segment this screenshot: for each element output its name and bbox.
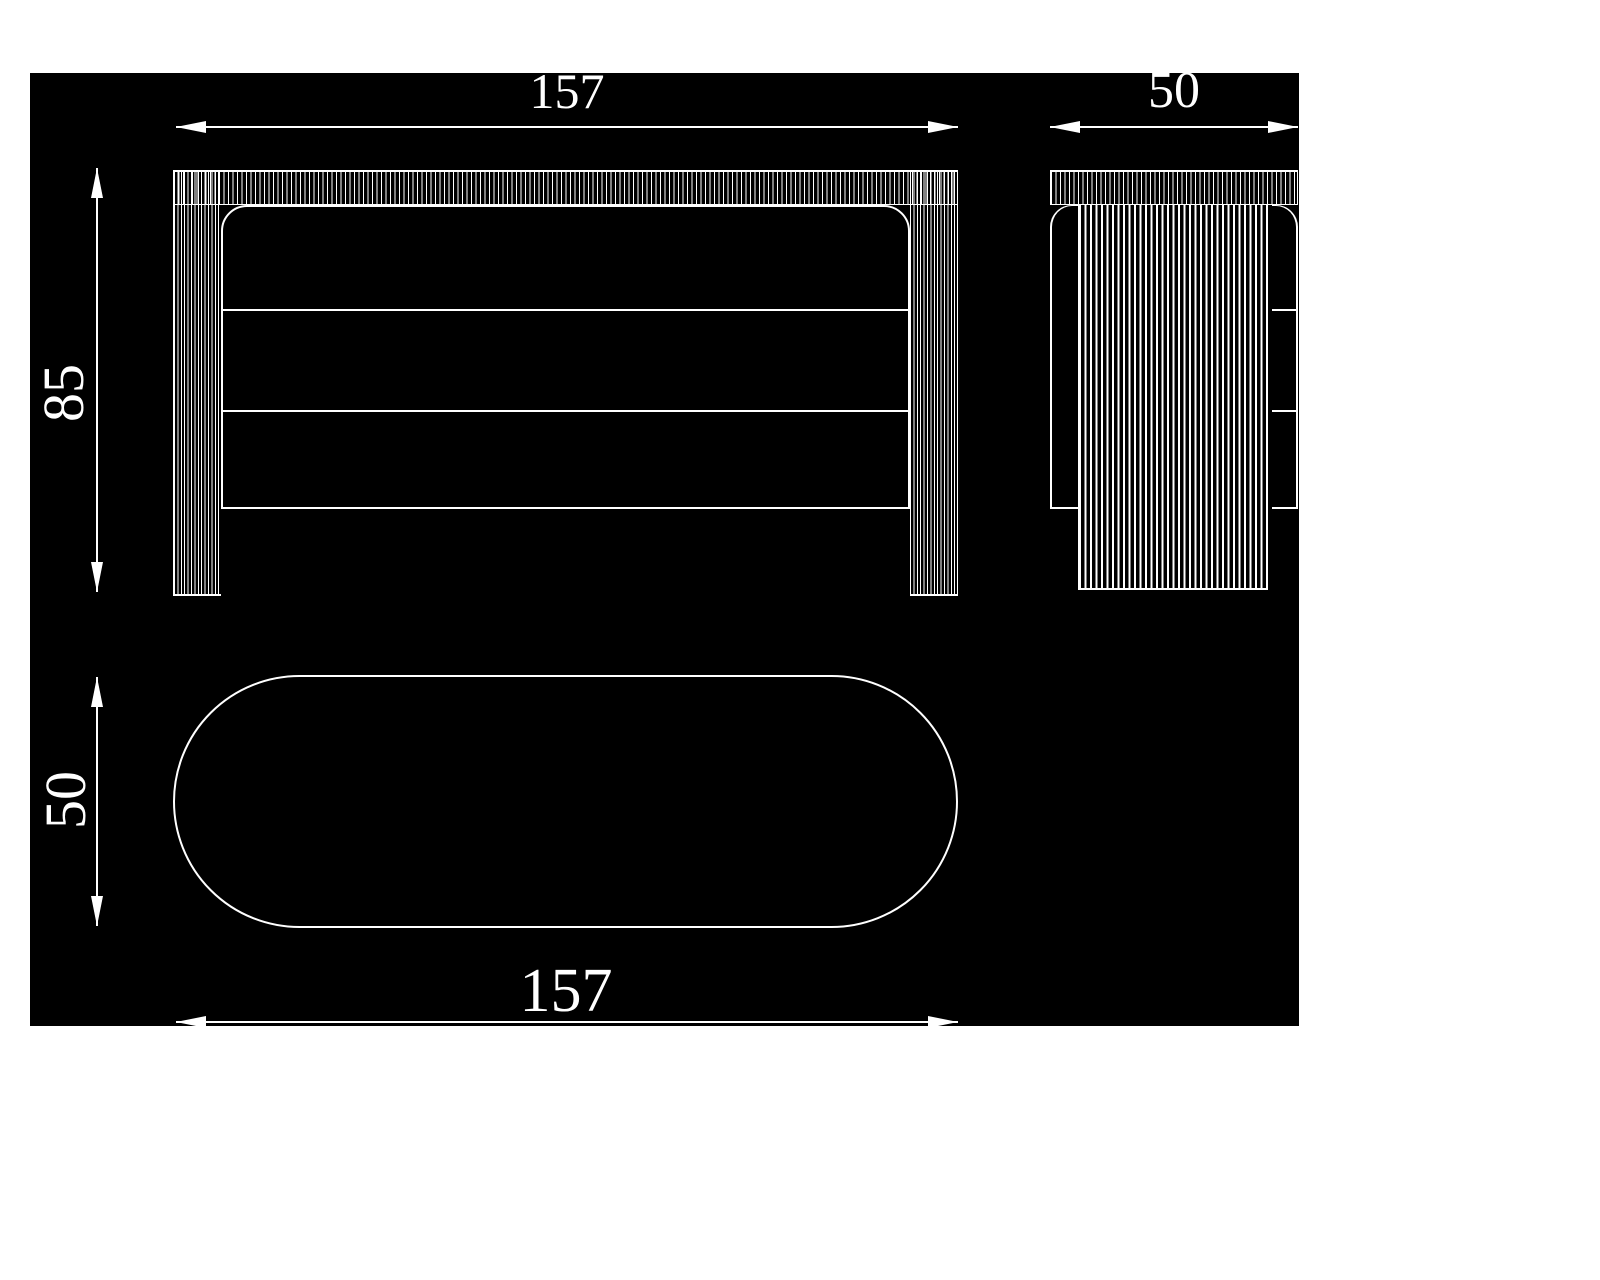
dimension-label-front-height: 85 bbox=[34, 333, 94, 453]
dimension-arrowhead bbox=[91, 562, 103, 592]
side-view-drawer-line bbox=[1272, 410, 1298, 412]
top-view-outline bbox=[173, 675, 958, 928]
front-view-drawer-line bbox=[221, 309, 910, 311]
dimension-label-top-depth: 50 bbox=[36, 740, 96, 860]
dimension-arrowhead bbox=[91, 168, 103, 198]
side-view-front-leg bbox=[1050, 205, 1078, 509]
front-view-body-outline bbox=[221, 205, 910, 509]
drawing-page: 157 50 85 50 157 bbox=[0, 0, 1600, 1280]
front-view-top-cap bbox=[173, 170, 958, 205]
dimension-line-side-depth bbox=[1050, 126, 1298, 128]
dimension-arrowhead bbox=[928, 1016, 958, 1028]
side-view-drawer-line bbox=[1272, 309, 1298, 311]
front-view-right-leg bbox=[910, 170, 958, 596]
dimension-line-front-width bbox=[176, 126, 958, 128]
dimension-label-side-depth: 50 bbox=[1094, 67, 1254, 115]
front-view-left-leg bbox=[173, 170, 221, 596]
dimension-arrowhead bbox=[176, 1016, 206, 1028]
dimension-label-front-width: 157 bbox=[487, 67, 647, 115]
dimension-line-front-height bbox=[96, 168, 98, 592]
dimension-arrowhead bbox=[1050, 121, 1080, 133]
dimension-label-top-width: 157 bbox=[486, 963, 646, 1021]
cad-canvas: 157 50 85 50 157 bbox=[30, 73, 1299, 1026]
dimension-arrowhead bbox=[928, 121, 958, 133]
dimension-arrowhead bbox=[1268, 121, 1298, 133]
side-view-panel bbox=[1078, 205, 1268, 590]
dimension-arrowhead bbox=[91, 896, 103, 926]
side-view-top-cap bbox=[1050, 170, 1298, 205]
dimension-arrowhead bbox=[176, 121, 206, 133]
front-view-drawer-line bbox=[221, 410, 910, 412]
dimension-arrowhead bbox=[91, 677, 103, 707]
side-view-back-leg bbox=[1272, 205, 1298, 509]
